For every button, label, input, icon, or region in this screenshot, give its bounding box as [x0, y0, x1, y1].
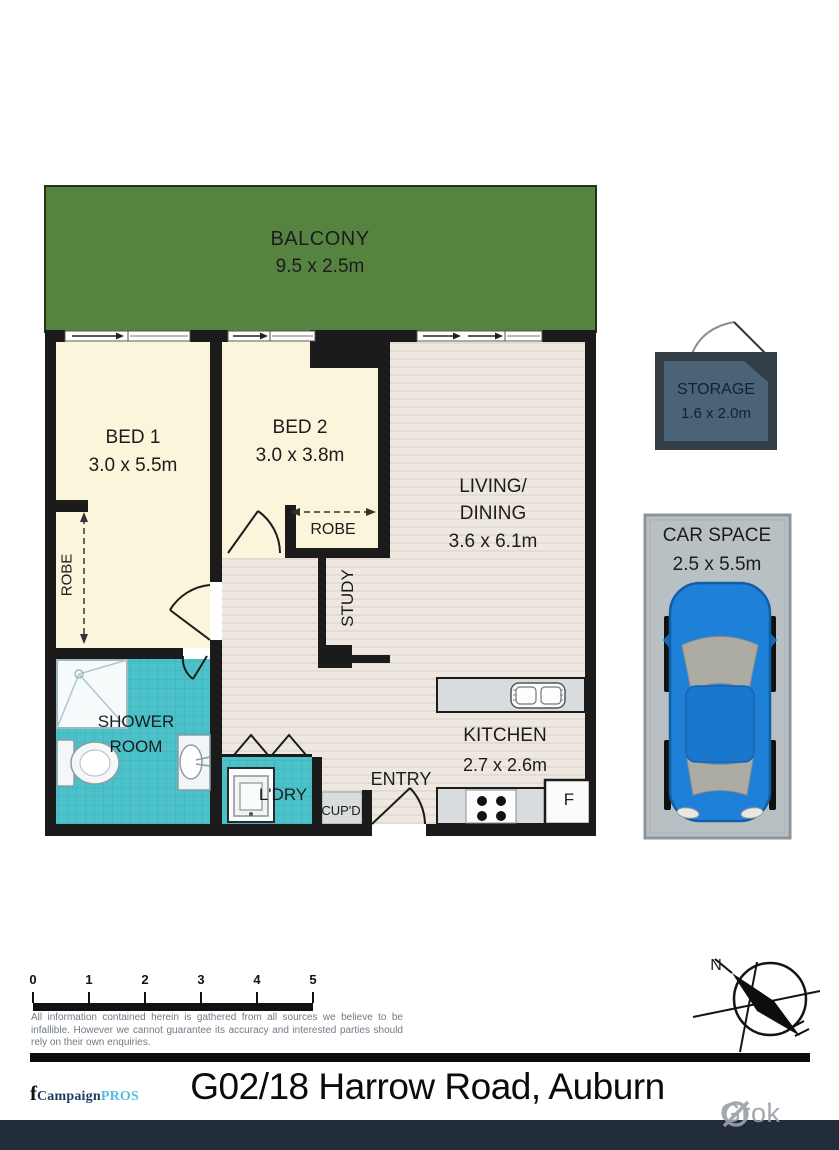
living-label-2: DINING — [460, 504, 527, 524]
balcony-label: BALCONY — [270, 229, 369, 250]
footer-bar — [0, 1120, 839, 1150]
cooktop-icon — [466, 790, 516, 823]
kitchen-label: KITCHEN — [463, 726, 546, 746]
study-label: STUDY — [338, 569, 358, 627]
robe-bed1-label: ROBE — [59, 554, 76, 597]
scale-tick-0: 0 — [29, 972, 36, 987]
scale-tick-5: 5 — [309, 972, 316, 987]
car-space-label: CAR SPACE — [663, 526, 771, 546]
basin-icon — [178, 735, 210, 790]
storage-label: STORAGE — [677, 382, 755, 399]
shower-room-label-2: ROOM — [110, 738, 163, 756]
bed2-dims: 3.0 x 3.8m — [256, 446, 345, 466]
car-icon — [663, 583, 777, 821]
car-space-dims: 2.5 x 5.5m — [673, 555, 762, 575]
entry-label: ENTRY — [371, 770, 432, 789]
bed2-label: BED 2 — [273, 418, 328, 438]
scale-tick-2: 2 — [141, 972, 148, 987]
sink-icon — [511, 683, 565, 708]
divider-bar — [30, 1053, 810, 1062]
balcony-dims: 9.5 x 2.5m — [276, 257, 365, 277]
living-dims: 3.6 x 6.1m — [449, 532, 538, 552]
compass-north-label: N — [710, 958, 722, 975]
robe-bed2-label: ROBE — [310, 522, 355, 539]
kitchen-dims: 2.7 x 2.6m — [463, 756, 547, 775]
disclaimer-text: All information contained herein is gath… — [31, 1012, 403, 1050]
scale-tick-1: 1 — [85, 972, 92, 987]
bed1-label: BED 1 — [106, 428, 161, 448]
scale-bar — [33, 992, 313, 1011]
laundry-label: L'DRY — [259, 786, 307, 804]
page-title: G02/18 Harrow Road, Auburn — [0, 1066, 839, 1108]
cupboard-label: CUP'D — [321, 804, 360, 818]
scale-tick-4: 4 — [253, 972, 260, 987]
storage-dims: 1.6 x 2.0m — [681, 406, 751, 422]
living-label-1: LIVING/ — [459, 477, 527, 497]
floor-plan-page: BALCONY 9.5 x 2.5m BED 1 3.0 x 5.5m BED … — [0, 0, 839, 1150]
grok-watermark: Grok — [720, 1098, 781, 1129]
grok-logo-icon — [720, 1098, 752, 1130]
bed1-dims: 3.0 x 5.5m — [89, 456, 178, 476]
shower-room-label-1: SHOWER — [98, 713, 175, 731]
scale-tick-3: 3 — [197, 972, 204, 987]
fridge-label: F — [564, 791, 574, 809]
floor-plan-drawing — [0, 0, 839, 1150]
window-symbols — [65, 331, 542, 341]
